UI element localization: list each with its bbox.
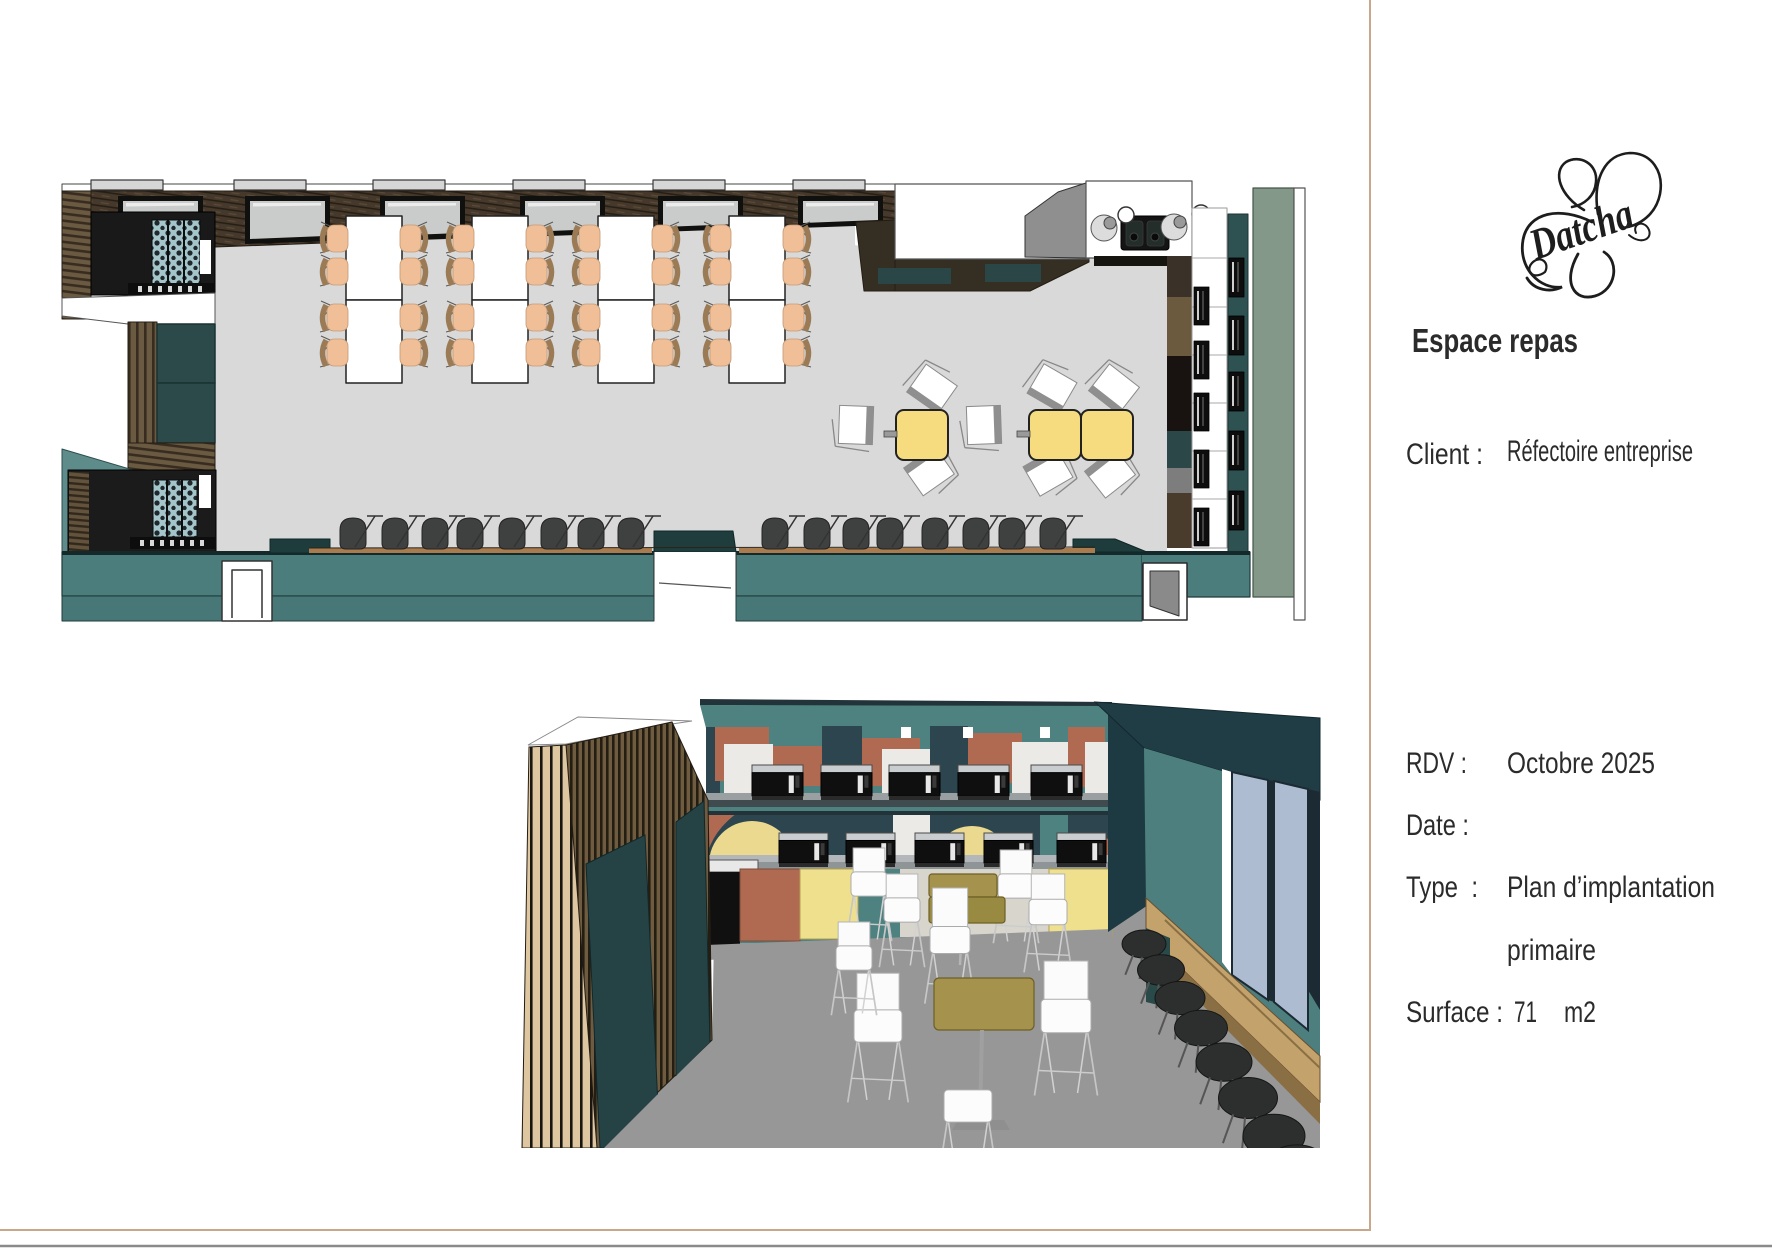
svg-text:Date :: Date : (1406, 809, 1469, 842)
svg-text:primaire: primaire (1507, 934, 1596, 967)
svg-text:Plan d’implantation: Plan d’implantation (1507, 871, 1715, 904)
svg-text:m2: m2 (1564, 996, 1596, 1029)
svg-text:Type :: Type : (1406, 871, 1478, 904)
svg-text:Octobre 2025: Octobre 2025 (1507, 747, 1655, 780)
svg-text:Réfectoire entreprise: Réfectoire entreprise (1507, 435, 1693, 468)
svg-text:Client :: Client : (1406, 438, 1483, 471)
svg-text:Surface :: Surface : (1406, 996, 1503, 1029)
svg-text:71: 71 (1514, 996, 1537, 1029)
svg-text:Espace repas: Espace repas (1412, 322, 1578, 359)
svg-text:RDV :: RDV : (1406, 747, 1467, 780)
